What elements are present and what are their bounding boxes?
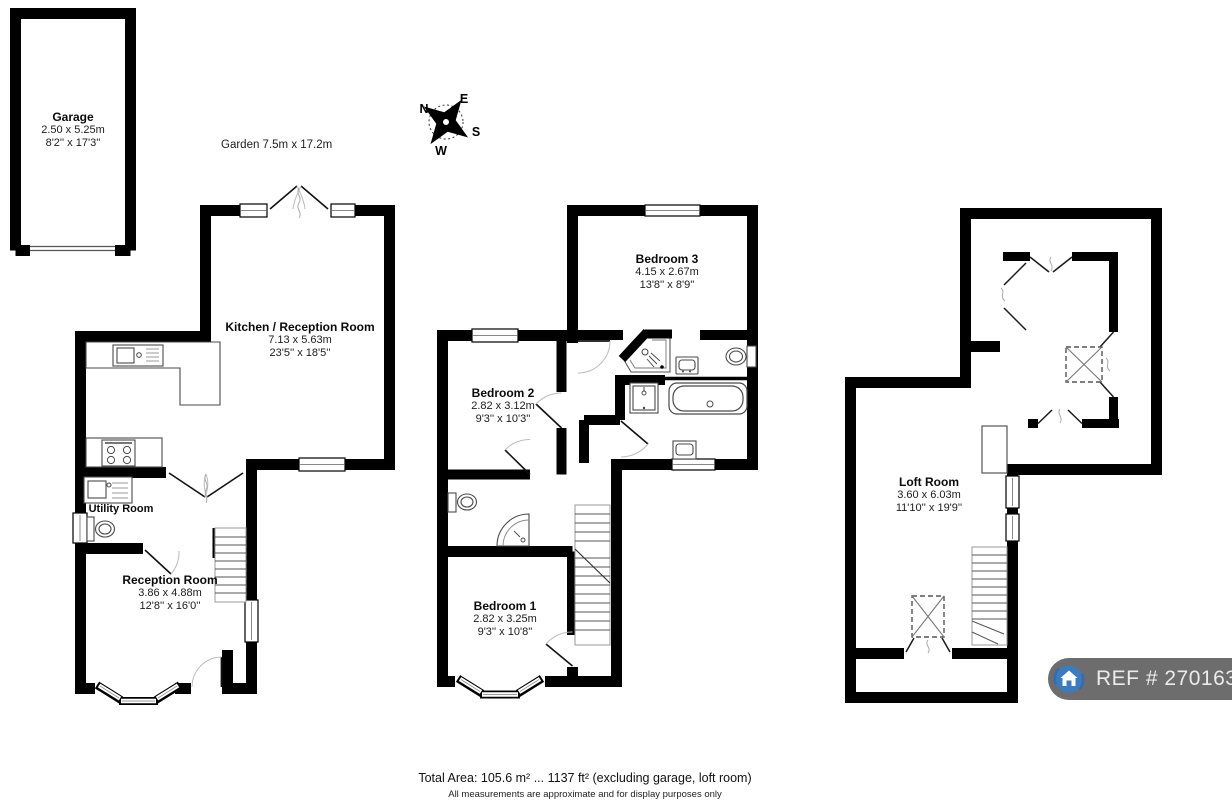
shower-room-sink bbox=[676, 357, 698, 374]
floorplan-drawing bbox=[0, 0, 1232, 808]
total-area-text: Total Area: 105.6 m² ... 1137 ft² (exclu… bbox=[205, 771, 965, 785]
bathroom-sink bbox=[673, 441, 696, 459]
compass-north-label: N bbox=[419, 102, 428, 116]
agency-logo-icon bbox=[1051, 661, 1087, 697]
garden-label: Garden 7.5m x 17.2m bbox=[221, 139, 332, 151]
corner-shower bbox=[622, 332, 672, 372]
loft-hatch-upper bbox=[1066, 347, 1102, 382]
utility-room-label: Utility Room bbox=[89, 503, 154, 516]
ref-badge: REF # 2701633 bbox=[1048, 658, 1232, 700]
kitchen-reception-label: Kitchen / Reception Room 7.13 x 5.63m 23… bbox=[225, 321, 374, 360]
stairs-ground bbox=[215, 528, 246, 602]
loft-hatch-lower bbox=[912, 596, 944, 637]
reception-room-label: Reception Room 3.86 x 4.88m 12'8'' x 16'… bbox=[122, 574, 217, 613]
ref-number-text: REF # 2701633 bbox=[1096, 667, 1232, 691]
utility-toilet bbox=[87, 517, 115, 541]
bedroom1-label: Bedroom 1 2.82 x 3.25m 9'3'' x 10'8'' bbox=[473, 600, 537, 639]
shower-room-toilet bbox=[726, 346, 756, 367]
floorplan-page: Garage 2.50 x 5.25m 8'2'' x 17'3'' Garde… bbox=[0, 0, 1232, 808]
stairs-first-floor bbox=[575, 505, 610, 645]
compass-south-label: S bbox=[472, 125, 480, 139]
kitchen-counter bbox=[86, 342, 220, 405]
compass-west-label: W bbox=[435, 144, 447, 158]
ground-floor-plan bbox=[73, 186, 390, 701]
utility-sink bbox=[84, 477, 132, 503]
garage-label: Garage 2.50 x 5.25m 8'2'' x 17'3'' bbox=[41, 111, 105, 150]
loft-chimney bbox=[982, 426, 1007, 473]
bedroom2-label: Bedroom 2 2.82 x 3.12m 9'3'' x 10'3'' bbox=[471, 387, 535, 426]
footer: Total Area: 105.6 m² ... 1137 ft² (exclu… bbox=[205, 771, 965, 800]
bedroom3-label: Bedroom 3 4.15 x 2.67m 13'8'' x 8'9'' bbox=[635, 253, 699, 292]
stairs-loft bbox=[972, 547, 1007, 645]
ensuite-toilet bbox=[448, 493, 477, 512]
bathtub bbox=[669, 383, 747, 414]
loft-room-label: Loft Room 3.60 x 6.03m 11'10'' x 19'9'' bbox=[896, 476, 962, 515]
ensuite-shower bbox=[497, 514, 529, 546]
loft-plan bbox=[851, 214, 1157, 698]
compass-east-label: E bbox=[460, 92, 468, 106]
disclaimer-text: All measurements are approximate and for… bbox=[205, 789, 965, 800]
